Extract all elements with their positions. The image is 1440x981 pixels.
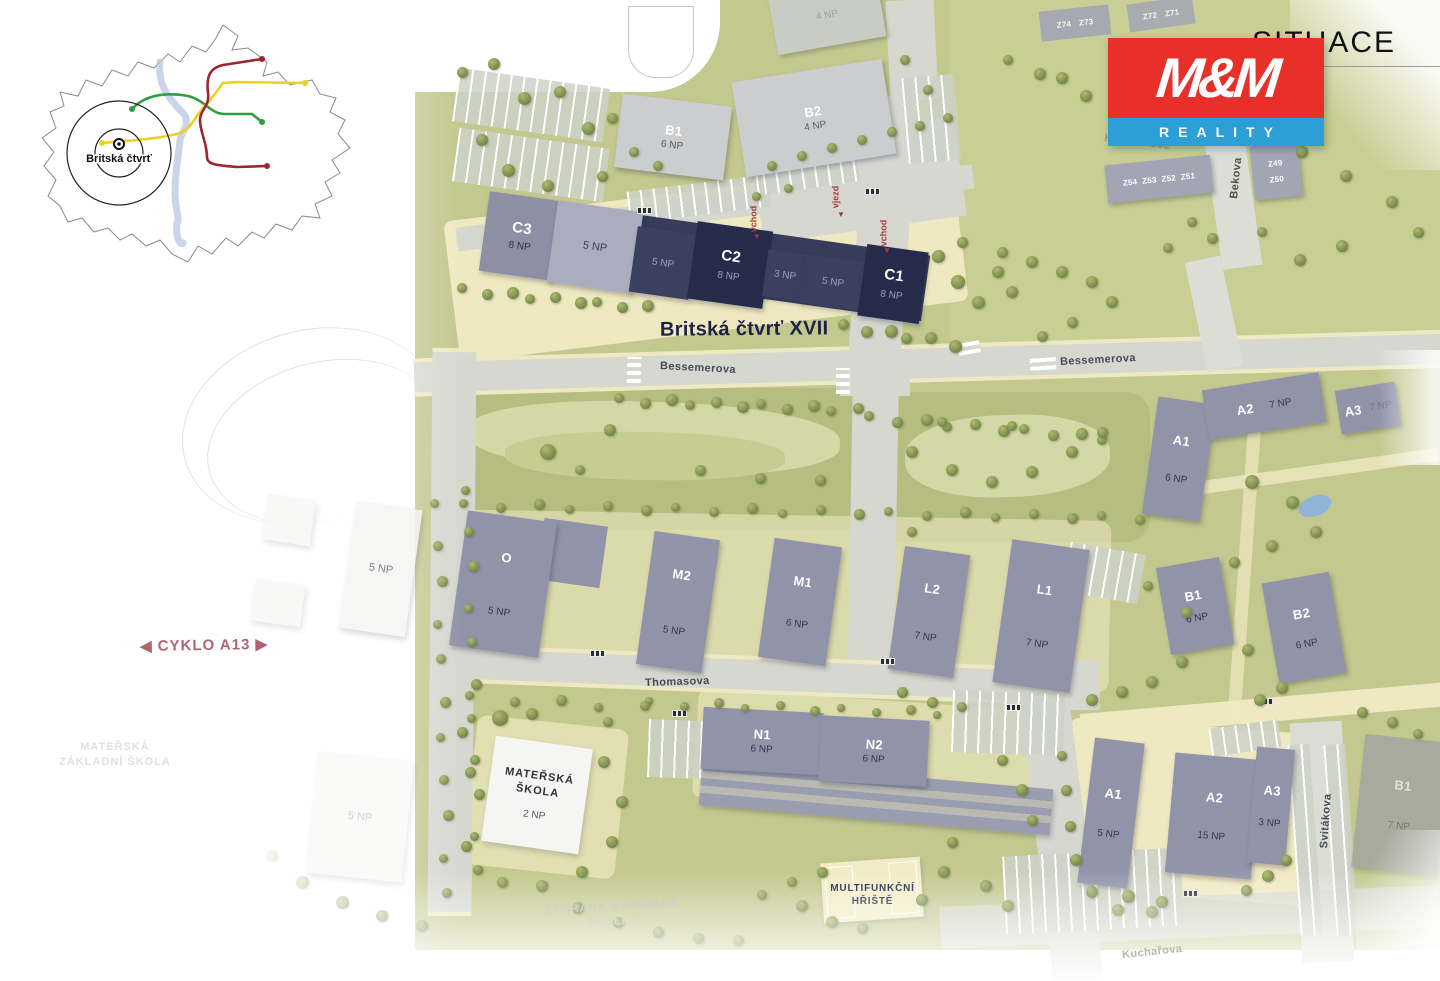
building-a1-south-floors: 5 NP	[1097, 828, 1120, 842]
tree-icon	[946, 464, 958, 476]
entrance-vchod-2-arrow: ▼	[883, 246, 891, 255]
tree-icon	[838, 319, 849, 330]
tree-icon	[1061, 785, 1072, 796]
tree-icon	[1086, 886, 1098, 898]
tree-icon	[536, 880, 548, 892]
tree-icon	[900, 55, 910, 65]
plot-z73: Z73	[1079, 17, 1094, 27]
tree-icon	[642, 300, 654, 312]
tree-icon	[671, 503, 680, 512]
tree-icon	[857, 923, 868, 934]
building-n1-floors: 6 NP	[750, 743, 773, 755]
tree-icon	[943, 113, 953, 123]
tree-icon	[1029, 509, 1039, 519]
tree-icon	[1056, 72, 1068, 84]
building-c2-code: C2	[720, 247, 742, 267]
tree-icon	[266, 850, 278, 862]
plot-z53: Z53	[1142, 175, 1157, 185]
tree-icon	[1146, 906, 1158, 918]
tree-icon	[582, 122, 595, 135]
building-o-code: O	[500, 550, 512, 566]
tree-icon	[1026, 256, 1038, 268]
utility-marker	[637, 207, 652, 214]
building-top-b2-code: B2	[803, 103, 822, 121]
tree-icon	[492, 710, 508, 726]
entrance-vjezd-arrow: ▼	[837, 210, 845, 219]
tree-icon	[467, 714, 476, 723]
tree-icon	[1245, 475, 1259, 489]
tree-icon	[884, 507, 893, 516]
building-a3-south-code: A3	[1263, 782, 1281, 798]
tree-icon	[1296, 146, 1308, 158]
building-a2-ne-code: A2	[1235, 400, 1254, 418]
metro-red-dot-2	[264, 163, 270, 169]
tree-icon	[885, 325, 898, 338]
plot-z72: Z72	[1142, 10, 1158, 21]
tree-icon	[857, 135, 867, 145]
utility-marker	[1183, 890, 1198, 897]
tree-icon	[938, 866, 950, 878]
tree-icon	[1241, 885, 1252, 896]
building-skola: MATEŘSKÁ ŠKOLA 2 NP	[481, 736, 593, 855]
tree-icon	[1336, 240, 1348, 252]
building-top-4np-floors: 4 NP	[815, 8, 839, 23]
tree-icon	[757, 890, 767, 900]
building-c-5np-a-floors: 5 NP	[651, 256, 675, 270]
building-skola-floors: 2 NP	[522, 808, 546, 822]
playground-label: MULTIFUNKČNÍ HŘIŠTĚ	[815, 882, 930, 908]
building-west-small-2	[250, 579, 305, 628]
utility-marker	[880, 658, 895, 665]
entrance-vchod-2: vchod	[878, 220, 888, 247]
building-c-5np-a: 5 NP	[629, 226, 698, 300]
tree-icon	[947, 837, 958, 848]
map-canvas: 4 NP B1 6 NP B2 4 NP C3 8 NP 5 NP 5 NP C…	[0, 0, 1440, 981]
tree-icon	[464, 527, 474, 537]
metro-red-dot-1	[259, 56, 265, 62]
tree-icon	[923, 85, 933, 95]
tree-icon	[1065, 821, 1076, 832]
tree-icon	[1086, 694, 1098, 706]
logo-red-box: M&M	[1108, 38, 1324, 118]
tree-icon	[518, 92, 531, 105]
metro-green-dot-1	[129, 106, 135, 112]
plot-z54: Z54	[1122, 177, 1137, 187]
tree-icon	[1034, 68, 1046, 80]
tree-icon	[433, 541, 443, 551]
tree-icon	[922, 511, 932, 521]
z-block-49-50: Z49 Z50	[1249, 142, 1302, 201]
building-c-3np-floors: 3 NP	[773, 269, 797, 283]
tree-icon	[575, 297, 587, 309]
entrance-vchod-1: vchod	[748, 206, 758, 233]
tree-icon	[1116, 686, 1128, 698]
plot-z71: Z71	[1164, 7, 1180, 18]
tree-icon	[1016, 784, 1028, 796]
tree-icon	[470, 832, 479, 841]
building-o-floors: 5 NP	[487, 605, 511, 619]
metro-green-dot-2	[259, 119, 265, 125]
tree-icon	[482, 289, 493, 300]
tree-icon	[502, 164, 515, 177]
tree-icon	[459, 499, 468, 508]
tree-icon	[476, 134, 488, 146]
faint-school-label: MATEŘSKÁ ZÁKLADNÍ ŠKOLA	[55, 740, 175, 771]
entrance-vjezd: vjezd	[830, 186, 840, 209]
tree-icon	[556, 695, 567, 706]
tree-icon	[695, 465, 706, 476]
tree-icon	[1026, 466, 1038, 478]
tree-icon	[986, 476, 998, 488]
tree-icon	[787, 877, 797, 887]
tree-icon	[1163, 243, 1173, 253]
tree-icon	[864, 411, 874, 421]
building-west-5np: 5 NP	[339, 501, 422, 637]
tree-icon	[468, 561, 479, 572]
tree-icon	[1003, 55, 1013, 65]
plot-z49: Z49	[1268, 158, 1283, 168]
tree-icon	[488, 58, 500, 70]
tree-icon	[1006, 286, 1018, 298]
cyklo-label: ◀ CYKLO A13 ▶	[140, 635, 268, 655]
tree-icon	[1143, 581, 1153, 591]
tree-icon	[887, 127, 897, 137]
tree-icon	[907, 527, 917, 537]
bullseye-dot	[117, 142, 121, 146]
tree-icon	[784, 184, 793, 193]
building-n2: N2 6 NP	[818, 715, 929, 787]
entrance-vchod-1-arrow: ▼	[753, 232, 761, 241]
building-sw-5np: 5 NP	[306, 751, 414, 882]
tree-icon	[826, 916, 838, 928]
tree-icon	[1086, 276, 1098, 288]
tree-icon	[1266, 540, 1278, 552]
tree-icon	[810, 706, 820, 716]
plot-z74: Z74	[1056, 19, 1071, 29]
tree-icon	[872, 708, 881, 717]
tree-icon	[525, 294, 535, 304]
utility-marker	[1006, 704, 1021, 711]
building-top-b1-floors: 6 NP	[660, 139, 683, 153]
tree-icon	[470, 755, 480, 765]
tree-icon	[598, 756, 610, 768]
tree-icon	[540, 444, 556, 460]
tree-icon	[1066, 446, 1078, 458]
tree-icon	[1007, 421, 1017, 431]
tree-icon	[442, 888, 452, 898]
building-top-b1: B1 6 NP	[614, 94, 732, 181]
tree-icon	[1057, 751, 1067, 761]
prague-inset-map: Britská čtvrť	[20, 10, 360, 275]
building-c1: C1 8 NP	[857, 244, 928, 324]
tree-icon	[471, 679, 482, 690]
tree-icon	[1076, 428, 1088, 440]
tree-icon	[604, 424, 616, 436]
tree-icon	[837, 704, 845, 712]
tree-icon	[915, 121, 925, 131]
tree-icon	[616, 796, 628, 808]
building-m1-floors: 6 NP	[785, 617, 809, 631]
tree-icon	[1146, 676, 1158, 688]
tree-icon	[1097, 511, 1106, 520]
tree-icon	[1286, 496, 1299, 509]
tree-icon	[685, 400, 695, 410]
building-c2-floors: 8 NP	[717, 269, 741, 283]
tree-icon	[1002, 900, 1014, 912]
tree-icon	[816, 505, 826, 515]
building-l1-code: L1	[1036, 581, 1054, 598]
tree-icon	[897, 687, 908, 698]
tree-icon	[711, 397, 722, 408]
building-a1-south-code: A1	[1104, 785, 1123, 802]
road-junction-pad	[840, 350, 910, 396]
building-c3-floors: 8 NP	[508, 239, 532, 253]
tree-icon	[554, 86, 566, 98]
tree-icon	[693, 933, 704, 944]
logo-reality-text: REALITY	[1150, 124, 1282, 140]
tree-icon	[797, 151, 807, 161]
logo-blue-band: REALITY	[1108, 118, 1324, 146]
tree-icon	[1294, 254, 1306, 266]
cyklo-text: CYKLO A13	[158, 636, 251, 655]
tree-icon	[467, 637, 477, 647]
tree-icon	[594, 703, 603, 712]
tree-icon	[592, 297, 602, 307]
building-m2-code: M2	[672, 566, 693, 583]
building-b2-east-code: B2	[1292, 605, 1312, 623]
tree-icon	[808, 400, 820, 412]
building-b1-se-code: B1	[1394, 777, 1413, 794]
building-c-5np-b: 5 NP	[799, 254, 867, 311]
tree-icon	[776, 701, 785, 710]
tree-icon	[436, 733, 445, 742]
building-l1-floors: 7 NP	[1025, 637, 1049, 651]
building-b2-east-floors: 6 NP	[1295, 637, 1319, 652]
tree-icon	[464, 604, 473, 613]
tree-icon	[440, 697, 451, 708]
building-a3-ne-code: A3	[1343, 402, 1362, 420]
street-thomasova: Thomasova	[645, 675, 710, 689]
plot-z51: Z51	[1180, 171, 1195, 181]
building-n2-code: N2	[865, 737, 883, 753]
tree-icon	[827, 143, 837, 153]
tree-icon	[1106, 296, 1118, 308]
building-west-5np-floors: 5 NP	[368, 561, 394, 576]
tree-icon	[933, 711, 941, 719]
tree-icon	[1242, 644, 1254, 656]
tree-icon	[653, 161, 663, 171]
building-c1-floors: 8 NP	[880, 288, 904, 302]
building-c3-code: C3	[511, 219, 533, 239]
tree-icon	[575, 465, 585, 475]
building-b1-east-code: B1	[1183, 587, 1203, 605]
tree-icon	[861, 326, 873, 338]
tree-icon	[756, 399, 766, 409]
plot-z50: Z50	[1269, 174, 1284, 184]
tree-icon	[1112, 904, 1124, 916]
tree-icon	[473, 865, 483, 875]
tree-icon	[680, 702, 689, 711]
tree-icon	[433, 620, 442, 629]
tree-icon	[576, 866, 588, 878]
tree-icon	[1387, 717, 1398, 728]
building-a2-south-floors: 15 NP	[1197, 830, 1226, 843]
logo-mm-text: M&M	[1154, 50, 1279, 106]
tree-icon	[336, 896, 349, 909]
building-m2-floors: 5 NP	[662, 624, 686, 638]
tree-icon	[957, 702, 967, 712]
building-c-5np-light-floors: 5 NP	[582, 239, 608, 254]
tree-icon	[597, 171, 608, 182]
tree-icon	[443, 810, 454, 821]
tree-icon	[1257, 227, 1267, 237]
building-c-5np-b-floors: 5 NP	[821, 276, 845, 290]
crosswalk	[627, 357, 642, 383]
cyklo-arrow-left: ◀	[140, 638, 158, 655]
tree-icon	[437, 576, 448, 587]
tree-icon	[416, 920, 428, 932]
tree-icon	[992, 266, 1004, 278]
tree-icon	[957, 237, 968, 248]
building-skola-name: MATEŘSKÁ ŠKOLA	[497, 764, 580, 803]
tree-icon	[737, 401, 749, 413]
tree-icon	[461, 841, 472, 852]
building-a3-ne-floors: 7 NP	[1369, 399, 1393, 413]
tree-icon	[1037, 331, 1048, 342]
tree-icon	[972, 296, 985, 309]
tree-icon	[733, 935, 744, 946]
tree-icon	[755, 473, 766, 484]
tree-icon	[457, 67, 468, 78]
tree-icon	[436, 654, 446, 664]
tree-icon	[550, 292, 561, 303]
parking-stripes	[647, 719, 703, 779]
tree-icon	[1181, 607, 1192, 618]
utility-marker	[865, 188, 880, 195]
tree-icon	[653, 927, 664, 938]
building-b1-se: B1 7 NP	[1351, 734, 1440, 876]
building-a2-south-code: A2	[1205, 789, 1223, 805]
tree-icon	[1262, 870, 1274, 882]
tree-icon	[439, 854, 448, 863]
building-n2-floors: 6 NP	[862, 753, 885, 765]
tree-icon	[376, 910, 388, 922]
building-a2-ne-floors: 7 NP	[1269, 396, 1293, 410]
cyklo-arrow-right: ▶	[250, 636, 268, 653]
crosswalk	[836, 368, 850, 394]
tree-icon	[927, 697, 938, 708]
tree-icon	[1080, 90, 1092, 102]
tree-icon	[606, 836, 618, 848]
tree-icon	[937, 417, 947, 427]
tree-icon	[296, 876, 309, 889]
building-top-b2-floors: 4 NP	[803, 119, 827, 133]
tree-icon	[991, 513, 1000, 522]
tree-icon	[1386, 196, 1398, 208]
tree-icon	[752, 192, 761, 201]
tree-icon	[457, 727, 468, 738]
building-a3-ne: A3 7 NP	[1335, 382, 1401, 435]
building-l2-floors: 7 NP	[914, 630, 938, 644]
tree-icon	[1027, 815, 1038, 826]
tree-icon	[1413, 729, 1423, 739]
tree-icon	[542, 180, 554, 192]
tree-icon	[1357, 707, 1368, 718]
tree-icon	[906, 446, 918, 458]
building-c-5np-light: 5 NP	[547, 200, 644, 293]
tree-icon	[1229, 557, 1240, 568]
tree-icon	[1156, 896, 1168, 908]
tree-icon	[1187, 217, 1197, 227]
tree-icon	[854, 509, 865, 520]
tree-icon	[461, 486, 470, 495]
tree-icon	[526, 708, 538, 720]
tree-icon	[1048, 430, 1059, 441]
tree-icon	[474, 789, 485, 800]
tree-icon	[817, 867, 828, 878]
crosswalk	[1030, 355, 1057, 371]
tree-icon	[1067, 317, 1078, 328]
tree-icon	[1070, 854, 1082, 866]
tree-icon	[457, 283, 467, 293]
tree-icon	[951, 275, 965, 289]
building-a1-ne-code: A1	[1172, 432, 1191, 449]
tree-icon	[1281, 855, 1292, 866]
tree-icon	[1276, 682, 1288, 694]
tree-icon	[1067, 513, 1078, 524]
building-n1: N1 6 NP	[700, 707, 823, 775]
metro-yellow-dot-1	[99, 140, 105, 146]
tree-icon	[603, 501, 613, 511]
tree-icon	[1176, 656, 1188, 668]
building-m1-code: M1	[793, 573, 814, 590]
utility-marker	[672, 710, 687, 717]
parking-stripes	[951, 690, 1065, 756]
tree-icon	[607, 113, 618, 124]
tree-icon	[510, 697, 520, 707]
tree-icon	[430, 499, 439, 508]
tree-icon	[629, 147, 639, 157]
tree-icon	[796, 900, 808, 912]
tree-icon	[906, 705, 916, 715]
tree-icon	[932, 250, 945, 263]
building-l2-code: L2	[923, 580, 941, 597]
tree-icon	[640, 701, 650, 711]
building-west-small-1	[262, 494, 316, 546]
building-n1-code: N1	[753, 727, 771, 743]
prague-boundary	[42, 25, 350, 262]
utility-marker	[590, 650, 605, 657]
building-b1-se-floors: 7 NP	[1387, 820, 1410, 833]
tree-icon	[1340, 170, 1352, 182]
plot-z52: Z52	[1161, 173, 1176, 183]
building-c1-code: C1	[883, 266, 905, 286]
tree-icon	[1122, 890, 1135, 903]
mm-reality-logo: M&M REALITY	[1108, 38, 1324, 146]
tree-icon	[980, 880, 992, 892]
tree-icon	[1413, 227, 1424, 238]
tree-icon	[997, 247, 1008, 258]
tree-icon	[1254, 694, 1266, 706]
building-top-b1-code: B1	[664, 122, 683, 139]
building-a3-south-floors: 3 NP	[1258, 817, 1281, 830]
tree-icon	[439, 775, 449, 785]
tree-icon	[640, 398, 651, 409]
tree-icon	[603, 717, 613, 727]
tree-icon	[1097, 427, 1108, 438]
metro-yellow-dot-2	[302, 80, 308, 86]
site-label: Britská čtvrť XVII	[660, 317, 829, 341]
